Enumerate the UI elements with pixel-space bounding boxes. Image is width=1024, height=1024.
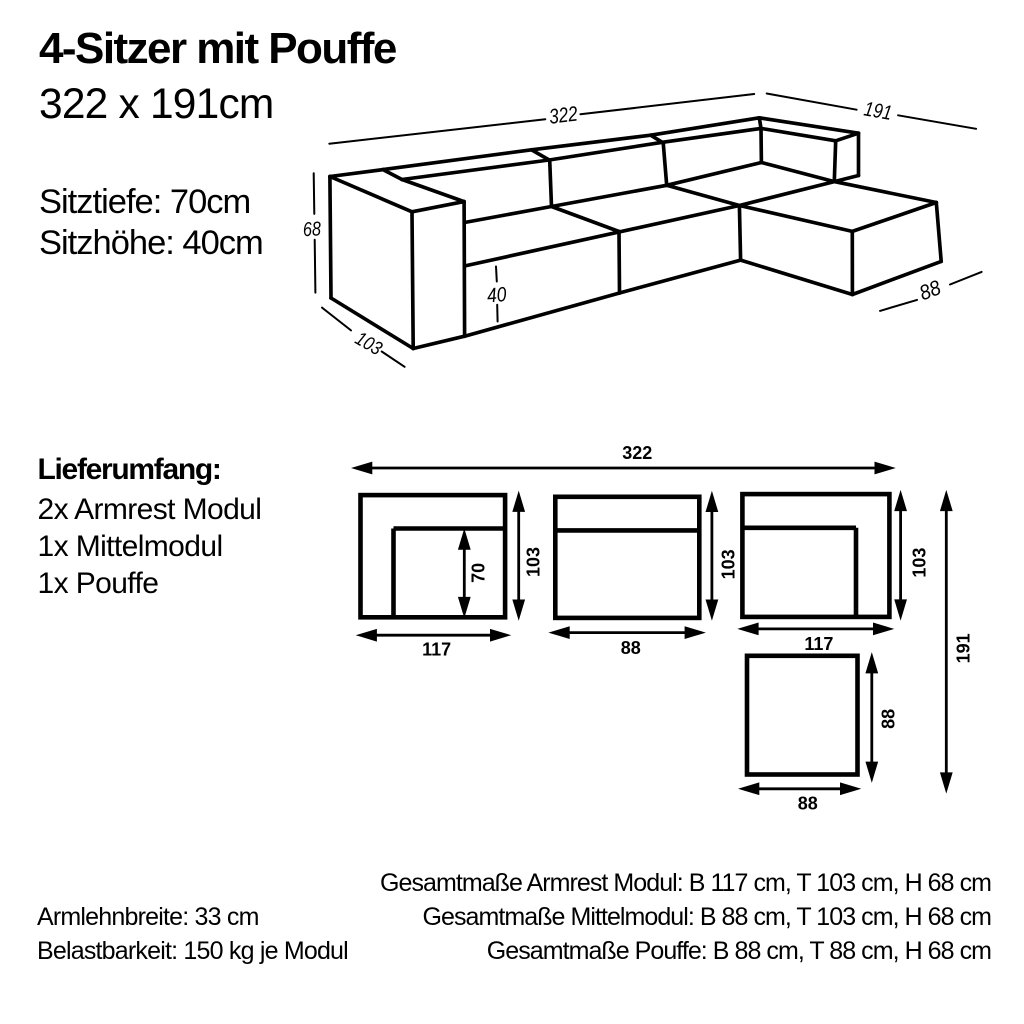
svg-text:103: 103 (524, 547, 544, 577)
svg-text:117: 117 (422, 640, 451, 660)
svg-text:88: 88 (621, 638, 641, 658)
svg-text:88: 88 (878, 709, 898, 729)
svg-text:191: 191 (954, 633, 974, 663)
svg-text:322: 322 (548, 102, 579, 128)
svg-text:40: 40 (486, 283, 508, 308)
svg-text:70: 70 (469, 563, 489, 583)
svg-text:117: 117 (804, 634, 833, 654)
svg-text:103: 103 (719, 549, 739, 579)
svg-text:103: 103 (351, 328, 385, 361)
svg-text:88: 88 (798, 794, 818, 814)
svg-text:68: 68 (302, 218, 321, 241)
svg-text:103: 103 (910, 548, 930, 578)
svg-text:322: 322 (622, 443, 652, 463)
svg-text:191: 191 (862, 97, 894, 125)
svg-text:88: 88 (916, 276, 944, 305)
